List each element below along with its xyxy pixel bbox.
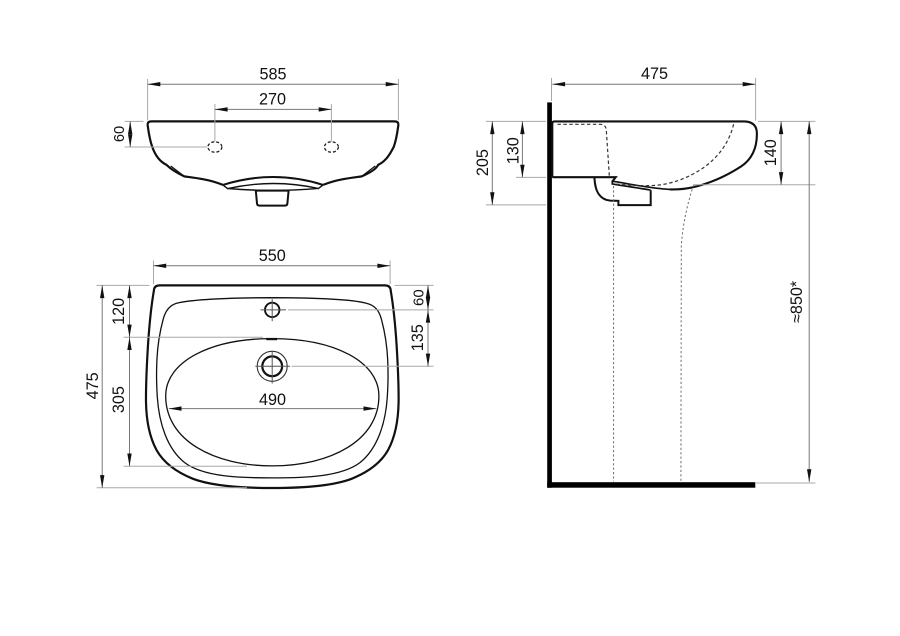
svg-text:270: 270 xyxy=(259,91,286,109)
svg-text:305: 305 xyxy=(110,386,128,413)
svg-text:135: 135 xyxy=(409,324,427,351)
svg-text:130: 130 xyxy=(505,137,523,164)
svg-text:550: 550 xyxy=(259,247,286,265)
svg-text:60: 60 xyxy=(410,289,427,306)
svg-text:140: 140 xyxy=(762,139,780,166)
svg-text:490: 490 xyxy=(259,391,286,409)
svg-text:475: 475 xyxy=(641,65,668,83)
svg-text:205: 205 xyxy=(474,149,492,176)
svg-text:585: 585 xyxy=(259,66,286,84)
svg-text:120: 120 xyxy=(110,298,128,325)
svg-text:≈850*: ≈850* xyxy=(788,280,806,323)
svg-text:60: 60 xyxy=(112,126,128,142)
svg-text:475: 475 xyxy=(84,372,102,399)
